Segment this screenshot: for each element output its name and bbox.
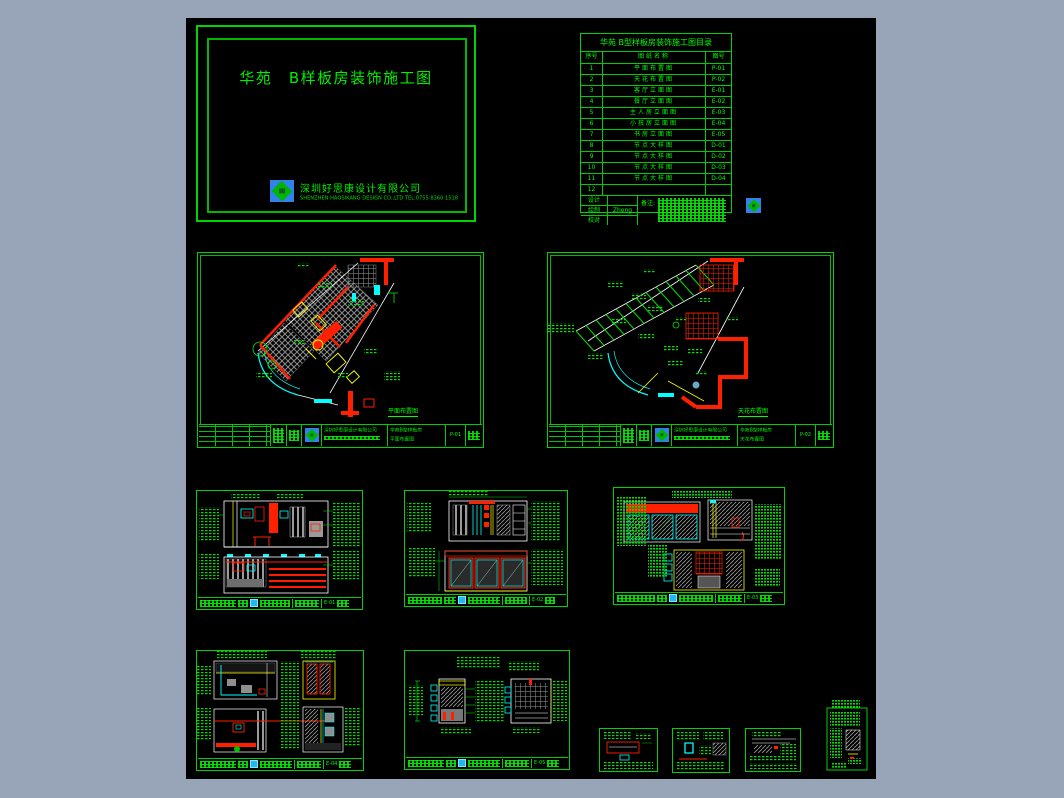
- detail-2-drawing: [673, 729, 729, 772]
- drawing-number: E-05: [534, 760, 545, 766]
- cover-company-block: 深圳好思康设计有限公司 SHENZHEN HAOSIKANG DESIGN CO…: [270, 180, 486, 202]
- header-number: 图号: [706, 52, 731, 63]
- row-no: 6: [581, 119, 603, 129]
- draft-label: 绘制: [581, 206, 608, 215]
- drawing-name: 主人房立面图: [603, 108, 706, 118]
- remark-label: 备注:: [641, 198, 655, 207]
- row-no: 10: [581, 163, 603, 173]
- directory-row: 1平面布置图P-01: [581, 64, 731, 75]
- titlebar-company: 深圳好思康设计有限公司: [674, 426, 723, 433]
- drawing-number: D-03: [706, 163, 731, 173]
- elevation-e-drawing: [405, 651, 569, 758]
- check-value: [608, 216, 638, 225]
- drawing-number: P-01: [446, 425, 466, 446]
- elevation-d-titlebar: E-04: [198, 758, 362, 769]
- signature-block: 设计 绘制Zheng 校对: [581, 196, 638, 225]
- sheet-detail-3: [745, 728, 801, 772]
- row-no: 9: [581, 152, 603, 162]
- drawing-number: [706, 185, 731, 195]
- sheet-plan-furniture: 平面布置图 深圳好思康设计有限公司 华苑B型样板房平面布置图 P-01: [197, 252, 484, 448]
- drawing-number: E-04: [326, 761, 337, 767]
- row-no: 2: [581, 75, 603, 85]
- drawing-name: [603, 185, 706, 195]
- titlebar-logo-icon: [250, 599, 258, 607]
- detail-3-drawing: [746, 729, 800, 771]
- drawing-number: D-04: [706, 174, 731, 184]
- sheet-elevation-b: E-02: [404, 490, 568, 607]
- titlebar-drawing-name: 平面布置图: [390, 435, 432, 442]
- sheet-detail-4: [826, 700, 872, 775]
- company-logo-icon: [270, 180, 294, 202]
- drawing-number: E-04: [706, 119, 731, 129]
- revision-table: [549, 425, 621, 446]
- directory-header-row: 序号 图纸名称 图号: [581, 52, 731, 64]
- plan1-caption: 平面布置图: [388, 406, 418, 417]
- elevation-b-titlebar: E-02: [406, 594, 566, 605]
- directory-row: 4餐厅立面图E-02: [581, 97, 731, 108]
- design-label: 设计: [581, 196, 608, 205]
- elevation-d-drawing: [197, 651, 363, 759]
- directory-row: 2天花布置图P-02: [581, 75, 731, 86]
- cad-canvas: 华苑 B样板房装饰施工图 深圳好思康设计有限公司 SHENZHEN HAOSIK…: [186, 18, 876, 779]
- drawing-name: 客厅立面图: [603, 86, 706, 96]
- drawing-name: 节点大样图: [603, 163, 706, 173]
- row-no: 5: [581, 108, 603, 118]
- drawing-number: P-02: [796, 425, 816, 446]
- titlebar-company: 深圳好思康设计有限公司: [324, 426, 373, 433]
- cad-preview-page: 华苑 B样板房装饰施工图 深圳好思康设计有限公司 SHENZHEN HAOSIK…: [0, 0, 1064, 798]
- titlebar-logo-icon: [669, 594, 677, 602]
- elevation-e-titlebar: E-05: [406, 757, 568, 768]
- directory-row: 6小孩房立面图E-04: [581, 119, 731, 130]
- drawing-number: P-01: [706, 64, 731, 74]
- sheet-directory: 华苑 B型样板房装饰施工图目录 序号 图纸名称 图号 1平面布置图P-012天花…: [580, 33, 732, 213]
- elevation-c-drawing: [614, 488, 784, 593]
- row-no: 1: [581, 64, 603, 74]
- plan1-titlebar: 深圳好思康设计有限公司 华苑B型样板房平面布置图 P-01: [199, 424, 482, 446]
- drawing-number: P-02: [706, 75, 731, 85]
- titlebar-logo-icon: [458, 759, 466, 767]
- drawing-name: 平面布置图: [603, 64, 706, 74]
- sheet-elevation-e: E-05: [404, 650, 570, 770]
- row-no: 11: [581, 174, 603, 184]
- sheet-elevation-d: E-04: [196, 650, 364, 771]
- detail-1-drawing: [600, 729, 657, 771]
- drawing-number: E-05: [706, 130, 731, 140]
- sheet-elevation-a: E-01: [196, 490, 363, 610]
- row-no: 4: [581, 97, 603, 107]
- remark-block: 备注:: [638, 196, 731, 225]
- row-no: 12: [581, 185, 603, 195]
- remark-text-noise: [658, 198, 726, 222]
- drawing-name: 天花布置图: [603, 75, 706, 85]
- elevation-a-drawing: [197, 491, 362, 598]
- titlebar-drawing-name: 天花布置图: [740, 435, 782, 442]
- elevation-c-titlebar: E-03: [615, 592, 783, 603]
- drawing-number: E-01: [324, 600, 335, 606]
- titlebar-logo-icon: [458, 596, 466, 604]
- drawing-name: 节点大样图: [603, 174, 706, 184]
- elevation-a-titlebar: E-01: [198, 597, 361, 608]
- check-label: 校对: [581, 216, 608, 225]
- header-no: 序号: [581, 52, 603, 63]
- sheet-cover: 华苑 B样板房装饰施工图 深圳好思康设计有限公司 SHENZHEN HAOSIK…: [196, 25, 476, 222]
- sheet-elevation-c: E-03: [613, 487, 785, 605]
- row-no: 8: [581, 141, 603, 151]
- drawing-number: D-01: [706, 141, 731, 151]
- drawing-name: 节点大样图: [603, 141, 706, 151]
- plan2-titlebar: 深圳好思康设计有限公司 华苑B型样板房天花布置图 P-02: [549, 424, 832, 446]
- cover-company-name: 深圳好思康设计有限公司: [300, 180, 486, 195]
- drawing-name: 小孩房立面图: [603, 119, 706, 129]
- sheet-detail-1: [599, 728, 658, 772]
- header-name: 图纸名称: [603, 52, 706, 63]
- sheet-plan-ceiling: 天花布置图 深圳好思康设计有限公司 华苑B型样板房天花布置图 P-02: [547, 252, 834, 448]
- directory-footer: 设计 绘制Zheng 校对 备注:: [581, 196, 731, 225]
- drawing-name: 节点大样图: [603, 152, 706, 162]
- directory-row: 11节点大样图D-04: [581, 174, 731, 185]
- drawing-number: E-03: [747, 595, 758, 601]
- row-no: 3: [581, 86, 603, 96]
- directory-row: 3客厅立面图E-01: [581, 86, 731, 97]
- directory-title: 华苑 B型样板房装饰施工图目录: [581, 34, 731, 52]
- sheet-detail-2: [672, 728, 730, 773]
- cover-company-info: SHENZHEN HAOSIKANG DESIGN CO.,LTD TEL:07…: [300, 195, 458, 201]
- company-logo-icon-small: [746, 198, 761, 213]
- titlebar-logo-icon: [250, 760, 258, 768]
- directory-row: 10节点大样图D-03: [581, 163, 731, 174]
- detail-4-drawing: [826, 700, 872, 775]
- drawing-name: 餐厅立面图: [603, 97, 706, 107]
- elevation-b-drawing: [405, 491, 567, 595]
- drawing-number: D-02: [706, 152, 731, 162]
- drawing-name: 书房立面图: [603, 130, 706, 140]
- revision-table: [199, 425, 271, 446]
- drawing-number: E-02: [532, 597, 543, 603]
- drafter-signature: Zheng: [608, 206, 638, 215]
- titlebar-logo-icon: [305, 428, 319, 442]
- directory-row: 5主人房立面图E-03: [581, 108, 731, 119]
- directory-row: 12: [581, 185, 731, 196]
- titlebar-project: 华苑B型样板房: [740, 426, 782, 433]
- drawing-number: E-01: [706, 86, 731, 96]
- row-no: 7: [581, 130, 603, 140]
- directory-rows: 1平面布置图P-012天花布置图P-023客厅立面图E-014餐厅立面图E-02…: [581, 64, 731, 196]
- drawing-number: E-02: [706, 97, 731, 107]
- directory-row: 7书房立面图E-05: [581, 130, 731, 141]
- cover-project-title: 华苑 B样板房装饰施工图: [216, 67, 456, 88]
- plan2-caption: 天花布置图: [738, 406, 768, 417]
- drawing-number: E-03: [706, 108, 731, 118]
- floor-plan-drawing: [198, 253, 483, 425]
- directory-row: 8节点大样图D-01: [581, 141, 731, 152]
- design-value: [608, 196, 638, 205]
- ceiling-plan-drawing: [548, 253, 833, 425]
- titlebar-project: 华苑B型样板房: [390, 426, 432, 433]
- titlebar-logo-icon: [655, 428, 669, 442]
- directory-row: 9节点大样图D-02: [581, 152, 731, 163]
